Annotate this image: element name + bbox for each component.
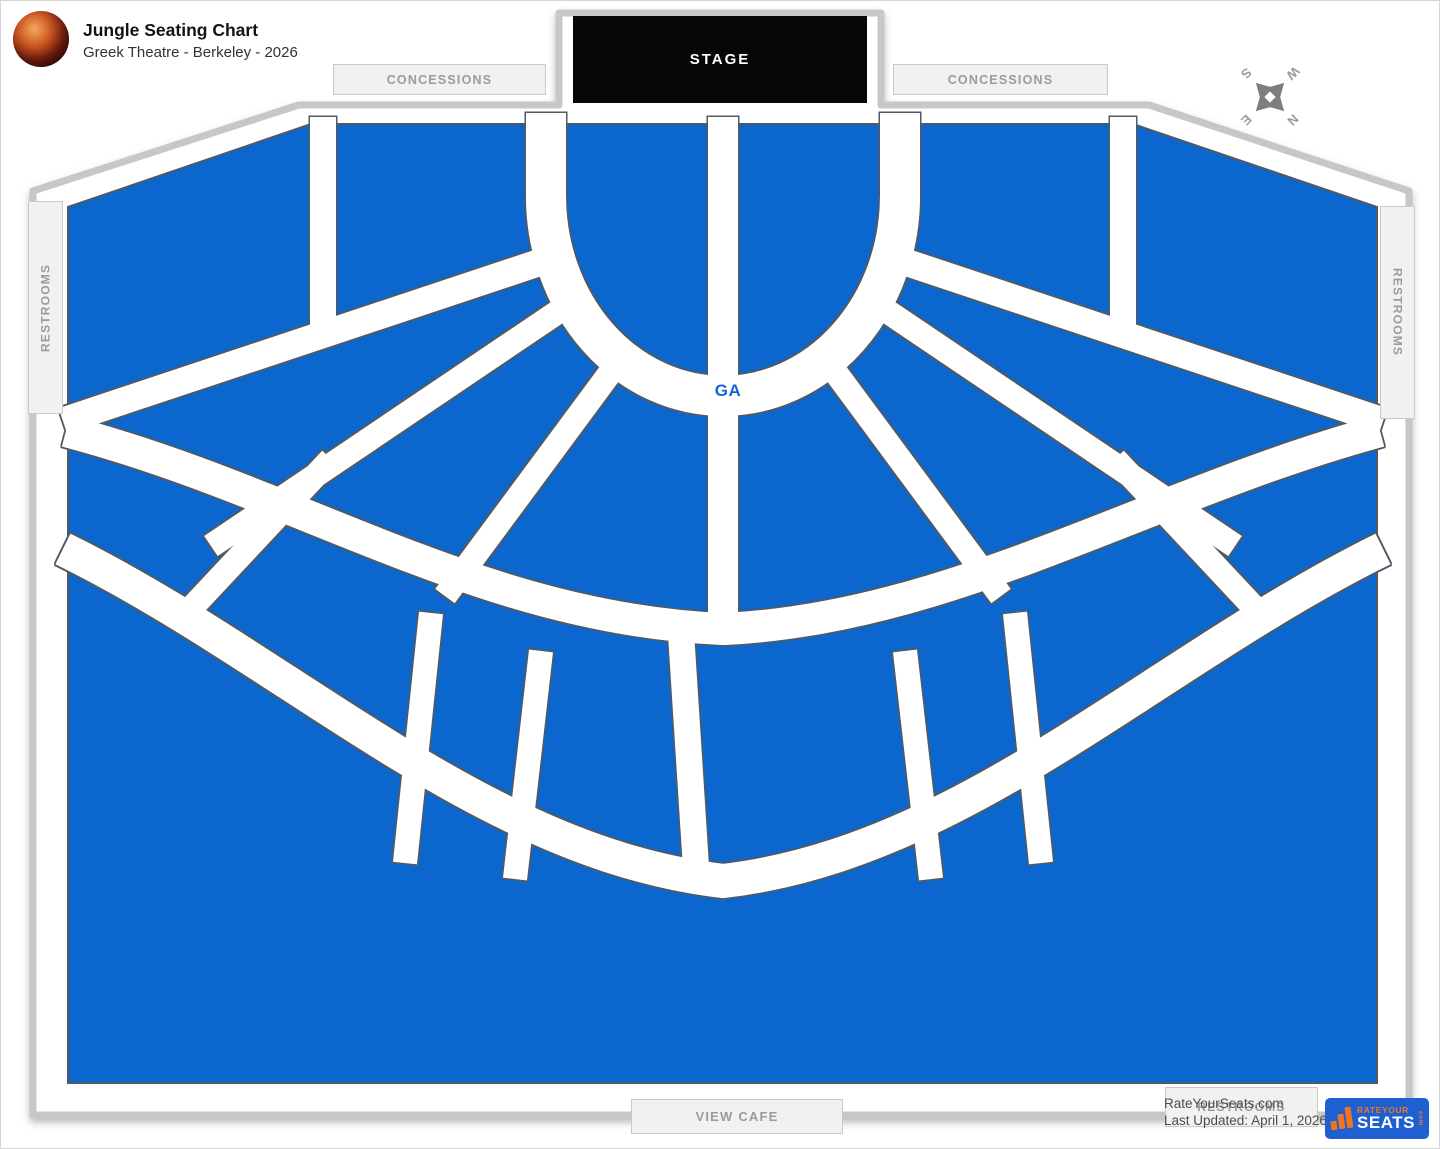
seating-chart-widget: STAGE CONCESSIONS CONCESSIONS RESTROOMS … xyxy=(0,0,1440,1149)
rateyourseats-logo[interactable]: RATEYOUR SEATS com xyxy=(1325,1098,1429,1139)
page-title: Jungle Seating Chart xyxy=(83,17,298,43)
restrooms-left: RESTROOMS xyxy=(28,201,63,414)
logo-text-seats: SEATS xyxy=(1357,1114,1415,1131)
compass-w: W xyxy=(1283,64,1303,84)
concessions-left: CONCESSIONS xyxy=(333,64,546,95)
logo-text-com: com xyxy=(1417,1111,1424,1126)
concessions-right: CONCESSIONS xyxy=(893,64,1108,95)
section-ga-label[interactable]: GA xyxy=(706,381,750,401)
restrooms-right: RESTROOMS xyxy=(1380,206,1415,419)
credit-updated: Last Updated: April 1, 2026 xyxy=(1164,1112,1327,1129)
compass-n: N xyxy=(1284,111,1301,128)
chart-header: Jungle Seating Chart Greek Theatre - Ber… xyxy=(13,11,298,67)
credits: RateYourSeats.com Last Updated: April 1,… xyxy=(1164,1095,1327,1129)
page-subtitle: Greek Theatre - Berkeley - 2026 xyxy=(83,44,298,61)
credit-site: RateYourSeats.com xyxy=(1164,1095,1327,1112)
aisle-center-lower xyxy=(681,633,697,883)
event-avatar xyxy=(13,11,69,67)
compass-icon: N E S W xyxy=(1217,44,1323,150)
view-cafe: VIEW CAFE xyxy=(631,1099,843,1134)
compass-s: S xyxy=(1238,65,1255,82)
compass-e: E xyxy=(1238,112,1255,129)
venue-map xyxy=(1,1,1440,1149)
stage: STAGE xyxy=(573,16,867,103)
logo-chart-icon xyxy=(1329,1107,1354,1131)
stage-label: STAGE xyxy=(690,51,751,68)
